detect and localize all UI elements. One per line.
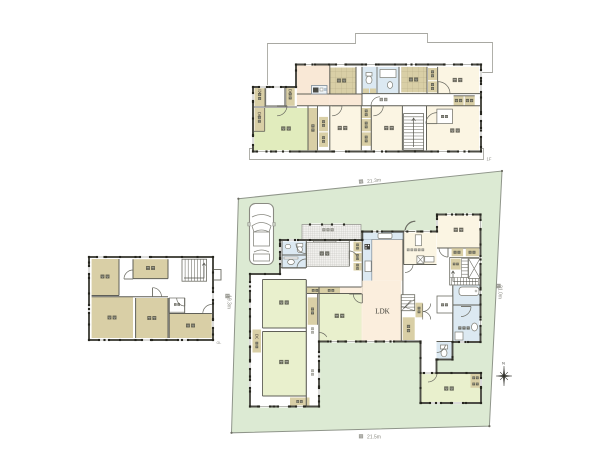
svg-text:N: N: [502, 362, 505, 366]
svg-text:21.0m: 21.0m: [497, 285, 503, 299]
svg-text:GL: GL: [217, 341, 222, 345]
svg-text:21.5m: 21.5m: [367, 435, 381, 441]
svg-text:LDK: LDK: [375, 308, 389, 316]
svg-text:1F: 1F: [487, 157, 492, 162]
svg-text:19.3m: 19.3m: [226, 295, 232, 309]
